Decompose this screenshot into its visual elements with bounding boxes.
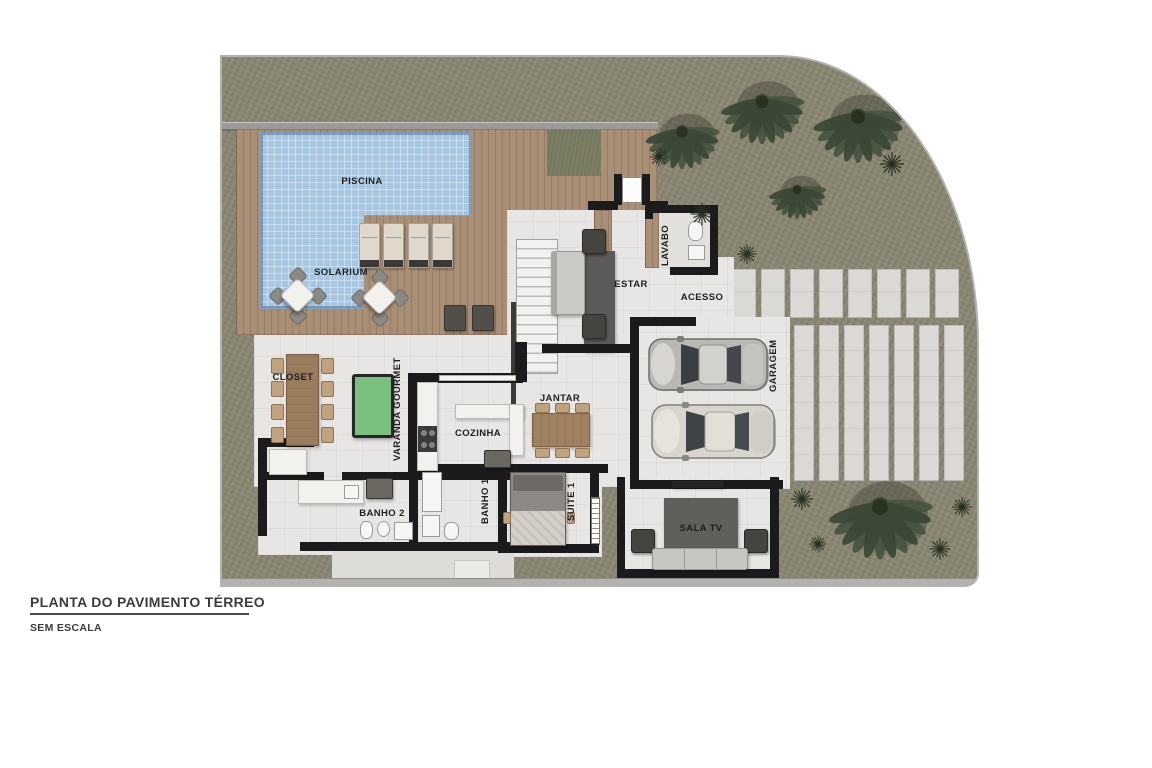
- kitchen-window-sill: [439, 375, 516, 381]
- palm-shrub: [809, 535, 827, 553]
- shower: [422, 472, 442, 512]
- wall-segment: [588, 201, 618, 210]
- closet-counter: [269, 449, 307, 475]
- room-label-garagem: GARAGEM: [768, 336, 784, 396]
- paver-slab: [894, 325, 914, 481]
- toilet: [688, 221, 703, 241]
- plan-title: PLANTA DO PAVIMENTO TÉRREO: [30, 594, 265, 610]
- palm-shrub: [880, 152, 904, 176]
- wall-segment: [670, 267, 718, 275]
- plan-scale-note: SEM ESCALA: [30, 622, 265, 634]
- paver-slab: [790, 269, 814, 318]
- room-label-banho1: BANHO 1: [480, 475, 495, 527]
- room-label-jantar: JANTAR: [530, 393, 590, 405]
- sun-lounger: [359, 223, 380, 268]
- sun-lounger: [408, 223, 429, 268]
- nightstand: [503, 512, 511, 524]
- wall-segment: [710, 205, 718, 275]
- toilet: [360, 521, 373, 539]
- dining-chair: [321, 427, 334, 443]
- bed-blanket: [511, 511, 565, 545]
- dining-table: [532, 413, 590, 447]
- paver-slab: [848, 269, 872, 318]
- deck-stool: [444, 305, 466, 331]
- title-block: PLANTA DO PAVIMENTO TÉRREO SEM ESCALA: [30, 594, 265, 634]
- title-underline: [30, 613, 249, 615]
- sun-lounger: [383, 223, 404, 268]
- palm-shrub: [929, 538, 950, 559]
- palm-shrub: [791, 488, 813, 510]
- room-label-piscina: PISCINA: [317, 176, 407, 188]
- paver-slab: [944, 325, 964, 481]
- wall-segment: [300, 542, 412, 551]
- kitchen-peninsula: [509, 404, 524, 456]
- deck-grass-patch: [547, 130, 601, 176]
- palm-tree: [720, 81, 805, 144]
- sink: [377, 521, 390, 537]
- wall-segment: [652, 205, 718, 213]
- page: PISCINA SOLARIUM ESTAR LAVABO ACESSO GAR…: [0, 0, 1152, 768]
- estar-sofa: [551, 251, 585, 315]
- suite-window: [591, 497, 600, 545]
- tv-sofa: [652, 548, 748, 570]
- palm-tree: [812, 94, 904, 163]
- paver-slab: [935, 269, 959, 318]
- toilet: [444, 522, 459, 540]
- wall-segment: [630, 317, 696, 326]
- patio-table: [280, 278, 315, 313]
- room-label-solarium: SOLARIUM: [296, 267, 386, 279]
- paver-slab: [732, 269, 756, 318]
- sink: [688, 245, 705, 260]
- wall-segment: [542, 344, 634, 353]
- dining-chair: [575, 448, 590, 458]
- tv-panel: [672, 481, 724, 488]
- wall-segment: [630, 317, 639, 489]
- estar-armchair: [582, 229, 606, 254]
- bed: [510, 472, 566, 546]
- room-label-closet: CLOSET: [263, 372, 323, 384]
- paver-slab: [869, 325, 889, 481]
- corridor-stool: [366, 478, 393, 499]
- dining-chair: [271, 404, 284, 420]
- dining-chair: [555, 448, 570, 458]
- wall-segment: [258, 438, 267, 536]
- entry-door: [622, 177, 642, 203]
- paver-slab: [877, 269, 901, 318]
- room-label-lavabo: LAVABO: [660, 219, 676, 271]
- palm-tree: [768, 176, 826, 219]
- room-label-cozinha: COZINHA: [448, 428, 508, 440]
- palm-shrub: [952, 497, 972, 517]
- room-label-suite1: SUITE 1: [566, 477, 581, 527]
- wall-segment: [408, 373, 417, 480]
- patio-table: [362, 280, 397, 315]
- sun-lounger: [432, 223, 453, 268]
- sink: [422, 515, 440, 537]
- paver-slab: [794, 325, 814, 481]
- palm-shrub: [737, 244, 757, 264]
- pool-table: [352, 374, 394, 438]
- paver-slab: [919, 325, 939, 481]
- dining-chair: [321, 404, 334, 420]
- dining-chair: [535, 448, 550, 458]
- stove-cooktop: [418, 426, 437, 452]
- paver-slab: [819, 269, 843, 318]
- paver-slab: [761, 269, 785, 318]
- wall-segment: [770, 477, 779, 578]
- room-label-acesso: ACESSO: [672, 292, 732, 304]
- room-label-sala-tv: SALA TV: [671, 523, 731, 535]
- estar-armchair: [582, 314, 606, 339]
- paver-slab: [906, 269, 930, 318]
- lot-wall: [222, 578, 977, 585]
- car-suv: [647, 336, 771, 394]
- palm-tree: [827, 481, 932, 559]
- wall-segment: [617, 569, 779, 578]
- car-sedan: [650, 402, 778, 462]
- rear-step: [454, 560, 490, 579]
- deck-stool: [472, 305, 494, 331]
- shower: [394, 522, 413, 540]
- site-plan: PISCINA SOLARIUM ESTAR LAVABO ACESSO GAR…: [220, 55, 979, 587]
- room-label-banho2: BANHO 2: [352, 508, 412, 520]
- sink: [344, 485, 359, 499]
- paver-slab: [844, 325, 864, 481]
- dining-chair: [271, 427, 284, 443]
- wall-segment: [617, 477, 625, 577]
- paver-slab: [819, 325, 839, 481]
- gourmet-long-table: [286, 354, 319, 446]
- room-label-estar: ESTAR: [601, 279, 661, 291]
- wall-segment: [645, 205, 653, 219]
- kitchen-stool: [484, 450, 511, 468]
- room-label-varanda-gourmet: VARANDA GOURMET: [392, 352, 408, 466]
- bed-pillows: [513, 475, 563, 491]
